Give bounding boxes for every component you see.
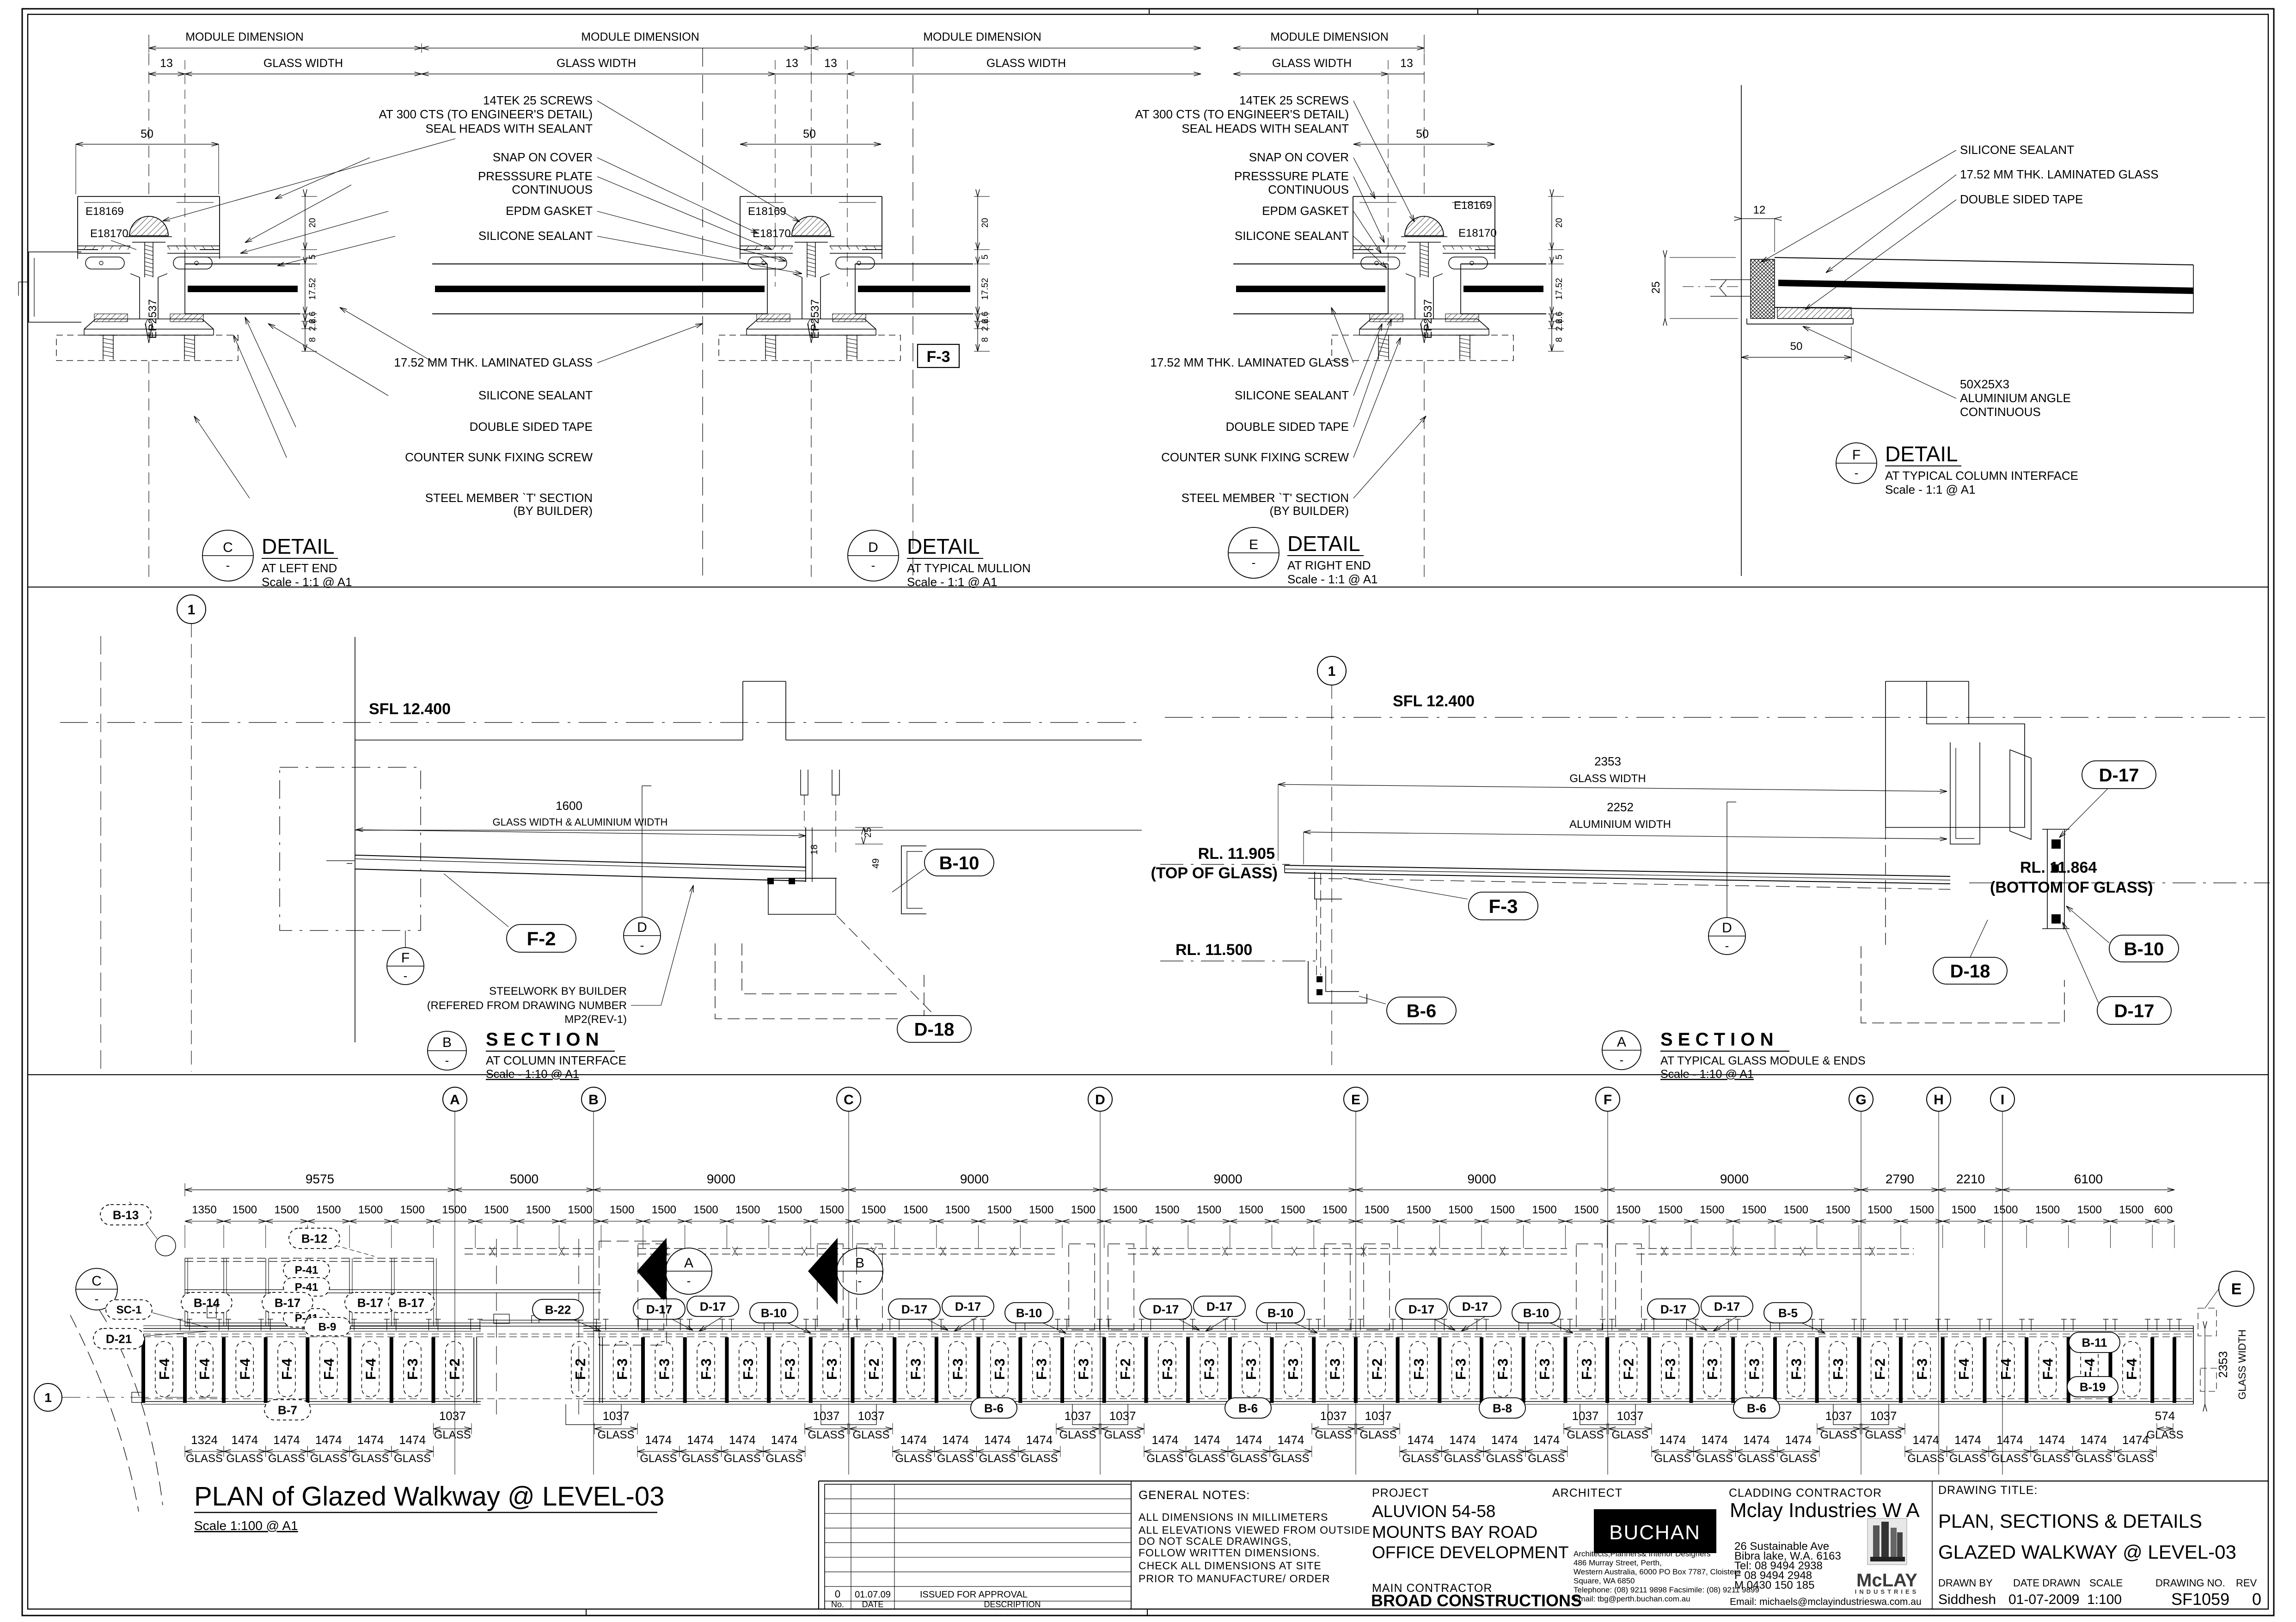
svg-text:MODULE DIMENSION: MODULE DIMENSION: [1270, 31, 1389, 43]
svg-text:50: 50: [1790, 340, 1803, 353]
svg-text:ALL ELEVATIONS VIEWED FROM: ALL ELEVATIONS VIEWED FROM OUTSIDE: [1139, 1524, 1370, 1536]
svg-text:E18170: E18170: [1458, 227, 1497, 239]
svg-text:1500: 1500: [1155, 1204, 1179, 1216]
svg-text:D-17: D-17: [1206, 1299, 1232, 1313]
svg-text:Email: tbg@perth.buchan.com.au: Email: tbg@perth.buchan.com.au: [1574, 1595, 1690, 1604]
svg-text:F: F: [1604, 1092, 1612, 1108]
svg-text:2.6: 2.6: [1555, 319, 1564, 331]
svg-text:GLASS: GLASS: [1146, 1452, 1183, 1465]
svg-text:B-17: B-17: [275, 1296, 300, 1310]
svg-text:F-3: F-3: [1537, 1359, 1553, 1380]
svg-text:8: 8: [308, 337, 318, 343]
svg-text:GLASS: GLASS: [1696, 1452, 1733, 1465]
svg-text:H: H: [1934, 1092, 1944, 1108]
svg-text:1474: 1474: [942, 1433, 969, 1447]
svg-text:8: 8: [1555, 337, 1564, 343]
svg-text:1474: 1474: [231, 1433, 258, 1447]
svg-text:Scale - 1:1 @ A1: Scale - 1:1 @ A1: [1885, 483, 1976, 496]
svg-text:GLASS: GLASS: [1402, 1452, 1439, 1465]
svg-text:GLASS: GLASS: [1611, 1429, 1648, 1441]
svg-text:AT 300 CTS (TO ENGINEER'S DETA: AT 300 CTS (TO ENGINEER'S DETAIL): [379, 107, 593, 121]
svg-text:GLASS: GLASS: [352, 1452, 389, 1465]
svg-text:600: 600: [2154, 1204, 2173, 1216]
svg-text:CONTINUOUS: CONTINUOUS: [1268, 183, 1349, 196]
svg-text:GLASS WIDTH: GLASS WIDTH: [263, 57, 343, 70]
svg-text:F-3: F-3: [1489, 895, 1518, 917]
svg-text:SFL 12.400: SFL 12.400: [369, 700, 451, 718]
svg-text:1500: 1500: [1658, 1204, 1682, 1216]
svg-text:F-3: F-3: [1285, 1359, 1301, 1380]
svg-text:1500: 1500: [1280, 1204, 1305, 1216]
svg-text:A: A: [450, 1092, 460, 1108]
svg-text:FOLLOW WRITTEN DIMENSIONS.: FOLLOW WRITTEN DIMENSIONS.: [1139, 1547, 1320, 1559]
svg-text:1500: 1500: [484, 1204, 508, 1216]
svg-text:REV: REV: [2236, 1577, 2257, 1589]
svg-text:STEEL MEMBER `T' SECTION: STEEL MEMBER `T' SECTION: [425, 491, 593, 505]
svg-text:1500: 1500: [2077, 1204, 2101, 1216]
svg-text:F: F: [401, 950, 410, 966]
svg-text:GLASS: GLASS: [1949, 1452, 1986, 1465]
svg-text:EPDM GASKET: EPDM GASKET: [506, 204, 593, 218]
svg-text:17.52 MM THK. LAMINATED GLASS: 17.52 MM THK. LAMINATED GLASS: [394, 355, 593, 369]
svg-text:1500: 1500: [610, 1204, 634, 1216]
svg-text:1474: 1474: [1026, 1433, 1053, 1447]
svg-text:1474: 1474: [1954, 1433, 1981, 1447]
svg-text:9000: 9000: [1720, 1172, 1749, 1186]
svg-text:F-3: F-3: [782, 1359, 798, 1380]
svg-text:D: D: [868, 540, 878, 555]
svg-text:Architects,Planners& Interior: Architects,Planners& Interior Designers: [1574, 1549, 1711, 1558]
svg-text:1500: 1500: [945, 1204, 970, 1216]
svg-text:SILICONE SEALANT: SILICONE SEALANT: [1235, 388, 1349, 402]
svg-text:GLASS: GLASS: [1780, 1452, 1817, 1465]
svg-text:(BY BUILDER): (BY BUILDER): [514, 504, 593, 518]
svg-text:1500: 1500: [2119, 1204, 2143, 1216]
svg-text:1500: 1500: [1825, 1204, 1850, 1216]
svg-text:-: -: [687, 1274, 691, 1288]
svg-text:B-19: B-19: [2080, 1380, 2106, 1394]
svg-text:D-17: D-17: [901, 1302, 927, 1316]
svg-text:E18169: E18169: [86, 205, 124, 218]
svg-text:G: G: [1855, 1092, 1866, 1108]
svg-text:F-4: F-4: [156, 1358, 172, 1380]
svg-text:1500: 1500: [778, 1204, 802, 1216]
svg-text:GLASS: GLASS: [765, 1452, 802, 1465]
svg-text:I: I: [2001, 1092, 2004, 1108]
svg-text:EP2537: EP2537: [147, 299, 159, 338]
svg-text:F-3: F-3: [740, 1359, 756, 1380]
svg-text:49: 49: [871, 858, 881, 869]
svg-text:D-17: D-17: [1408, 1302, 1434, 1316]
svg-text:D: D: [637, 920, 647, 935]
svg-text:14TEK 25 SCREWS: 14TEK 25 SCREWS: [483, 93, 593, 107]
svg-text:1474: 1474: [273, 1433, 300, 1447]
svg-text:Western Australia, 6000 PO Box: Western Australia, 6000 PO Box 7787, Clo…: [1574, 1567, 1741, 1576]
svg-text:F-3: F-3: [1327, 1359, 1343, 1380]
svg-text:1474: 1474: [1151, 1433, 1178, 1447]
svg-text:D-17: D-17: [955, 1299, 981, 1313]
svg-text:E: E: [1351, 1092, 1360, 1108]
svg-text:1500: 1500: [693, 1204, 718, 1216]
svg-text:CLADDING CONTRACTOR: CLADDING CONTRACTOR: [1729, 1487, 1882, 1500]
svg-text:GLASS: GLASS: [1021, 1452, 1058, 1465]
svg-text:STEELWORK BY BUILDER: STEELWORK BY BUILDER: [489, 985, 627, 998]
svg-text:F-3: F-3: [949, 1359, 966, 1380]
svg-text:1500: 1500: [233, 1204, 257, 1216]
svg-text:EPDM GASKET: EPDM GASKET: [1262, 204, 1349, 218]
svg-text:F-3: F-3: [927, 348, 950, 366]
svg-text:GLASS: GLASS: [1188, 1452, 1225, 1465]
svg-text:2790: 2790: [1886, 1172, 1914, 1186]
svg-text:1500: 1500: [442, 1204, 466, 1216]
svg-text:F-3: F-3: [1914, 1359, 1930, 1380]
svg-text:SILICONE SEALANT: SILICONE SEALANT: [1235, 229, 1349, 243]
svg-text:1474: 1474: [1659, 1433, 1686, 1447]
svg-text:GLASS: GLASS: [1567, 1429, 1604, 1441]
svg-text:1: 1: [1328, 664, 1336, 679]
svg-text:GLASS WIDTH & ALUMINIUM WI: GLASS WIDTH & ALUMINIUM WIDTH: [493, 816, 668, 828]
svg-text:B: B: [588, 1092, 599, 1108]
svg-text:1500: 1500: [1406, 1204, 1431, 1216]
svg-text:-: -: [1725, 939, 1729, 953]
svg-text:GLASS: GLASS: [682, 1452, 719, 1465]
svg-text:1474: 1474: [1194, 1433, 1220, 1447]
svg-text:GLASS WIDTH: GLASS WIDTH: [986, 57, 1066, 70]
svg-text:DRAWING NO.: DRAWING NO.: [2155, 1577, 2225, 1589]
svg-text:GENERAL NOTES:: GENERAL NOTES:: [1139, 1488, 1250, 1502]
svg-text:20: 20: [980, 218, 990, 227]
svg-text:GLASS: GLASS: [1907, 1452, 1944, 1465]
svg-text:B-6: B-6: [1407, 1001, 1436, 1021]
svg-text:F-3: F-3: [404, 1359, 421, 1380]
svg-text:2210: 2210: [1956, 1172, 1985, 1186]
svg-text:B-22: B-22: [545, 1303, 571, 1316]
svg-text:1: 1: [44, 1390, 52, 1405]
svg-text:AT RIGHT END: AT RIGHT END: [1287, 558, 1371, 572]
svg-text:DATE DRAWN: DATE DRAWN: [2013, 1577, 2080, 1589]
svg-text:1474: 1474: [2039, 1433, 2065, 1447]
svg-text:5: 5: [1555, 255, 1564, 260]
svg-text:DOUBLE SIDED TAPE: DOUBLE SIDED TAPE: [470, 420, 593, 434]
svg-text:1500: 1500: [1490, 1204, 1515, 1216]
svg-text:B-5: B-5: [1778, 1306, 1798, 1320]
svg-text:1037: 1037: [603, 1409, 630, 1423]
svg-text:DETAIL: DETAIL: [1885, 442, 1958, 466]
svg-text:GLASS: GLASS: [1272, 1452, 1309, 1465]
svg-text:F-2: F-2: [1620, 1359, 1636, 1380]
svg-text:BROAD CONSTRUCTIONS: BROAD CONSTRUCTIONS: [1371, 1591, 1582, 1610]
svg-text:13: 13: [1400, 57, 1413, 70]
svg-text:F-3: F-3: [992, 1359, 1008, 1380]
svg-text:01-07-2009: 01-07-2009: [2008, 1592, 2079, 1607]
svg-text:B-7: B-7: [278, 1403, 297, 1417]
svg-text:D-17: D-17: [646, 1302, 672, 1316]
svg-text:2252: 2252: [1607, 800, 1634, 814]
svg-text:F-4: F-4: [2124, 1358, 2140, 1380]
svg-text:9000: 9000: [960, 1172, 989, 1186]
svg-text:E18169: E18169: [1454, 199, 1492, 212]
svg-text:Scale - 1:1 @ A1: Scale - 1:1 @ A1: [262, 575, 352, 589]
svg-text:GLASS: GLASS: [2075, 1452, 2112, 1465]
svg-text:GLASS: GLASS: [1654, 1452, 1691, 1465]
svg-text:B-10: B-10: [761, 1306, 787, 1320]
svg-text:1037: 1037: [1617, 1409, 1644, 1423]
svg-text:1474: 1474: [729, 1433, 756, 1447]
svg-text:1037: 1037: [813, 1409, 840, 1423]
svg-text:F-4: F-4: [1998, 1358, 2014, 1380]
svg-text:2353: 2353: [1594, 754, 1621, 768]
svg-text:F-2: F-2: [866, 1359, 882, 1380]
svg-text:GLASS: GLASS: [2146, 1429, 2183, 1441]
svg-text:GLASS: GLASS: [597, 1429, 634, 1441]
svg-text:SF1059: SF1059: [2171, 1590, 2229, 1609]
svg-text:GLASS: GLASS: [1865, 1429, 1902, 1441]
svg-text:B-10: B-10: [1523, 1306, 1549, 1320]
svg-text:D-17: D-17: [1660, 1302, 1686, 1316]
svg-text:20: 20: [1555, 218, 1564, 227]
svg-text:E: E: [1249, 537, 1258, 552]
svg-text:S E C T I O N: S E C T I O N: [1660, 1029, 1773, 1050]
svg-text:SILICONE SEALANT: SILICONE SEALANT: [478, 229, 593, 243]
svg-text:CONTINUOUS: CONTINUOUS: [512, 183, 593, 196]
svg-text:-: -: [404, 969, 408, 983]
svg-text:F-4: F-4: [279, 1358, 295, 1380]
svg-text:P-41: P-41: [295, 1281, 318, 1294]
svg-text:9000: 9000: [1467, 1172, 1496, 1186]
svg-text:EP2537: EP2537: [809, 299, 821, 338]
svg-text:F-3: F-3: [1746, 1359, 1763, 1380]
svg-text:(BY BUILDER): (BY BUILDER): [1270, 504, 1349, 518]
svg-text:B-8: B-8: [1493, 1401, 1512, 1415]
svg-text:Email: michaels@mclayindustrie: Email: michaels@mclayindustrieswa.com.au: [1730, 1597, 1922, 1607]
svg-text:1500: 1500: [1029, 1204, 1053, 1216]
svg-text:E18170: E18170: [753, 227, 791, 240]
svg-text:D-21: D-21: [106, 1332, 132, 1346]
svg-text:ARCHITECT: ARCHITECT: [1552, 1487, 1623, 1500]
svg-text:13: 13: [824, 57, 837, 70]
svg-text:1474: 1474: [1743, 1433, 1770, 1447]
svg-text:AT COLUMN INTERFACE: AT COLUMN INTERFACE: [486, 1053, 626, 1067]
svg-text:12: 12: [1753, 204, 1766, 216]
svg-text:1500: 1500: [2035, 1204, 2060, 1216]
svg-text:B-11: B-11: [2082, 1335, 2107, 1349]
svg-text:18: 18: [809, 845, 820, 855]
svg-text:-: -: [1252, 556, 1256, 569]
svg-text:PLAN of Glazed Walkway @ LEVEL: PLAN of Glazed Walkway @ LEVEL-03: [194, 1481, 664, 1512]
svg-text:McLAY: McLAY: [1856, 1570, 1917, 1591]
svg-text:8: 8: [980, 337, 990, 343]
svg-text:DESCRIPTION: DESCRIPTION: [984, 1600, 1041, 1609]
svg-text:D: D: [1095, 1092, 1105, 1108]
svg-text:GLASS: GLASS: [394, 1452, 431, 1465]
svg-text:13: 13: [160, 57, 173, 70]
svg-text:MODULE DIMENSION: MODULE DIMENSION: [185, 31, 304, 43]
svg-text:MOUNTS BAY ROAD: MOUNTS BAY ROAD: [1372, 1523, 1537, 1542]
svg-text:1037: 1037: [1109, 1409, 1136, 1423]
svg-text:F-3: F-3: [1453, 1359, 1469, 1380]
svg-text:Square, WA 6850: Square, WA 6850: [1574, 1577, 1635, 1585]
svg-text:E18169: E18169: [748, 205, 786, 218]
svg-text:MP2(REV-1): MP2(REV-1): [564, 1013, 627, 1026]
svg-text:Siddhesh: Siddhesh: [1938, 1592, 1996, 1607]
svg-text:F-2: F-2: [447, 1359, 463, 1380]
svg-text:1474: 1474: [2122, 1433, 2149, 1447]
svg-text:F-3: F-3: [1830, 1359, 1846, 1380]
svg-text:CONTINUOUS: CONTINUOUS: [1960, 405, 2041, 419]
svg-text:S E C T I O N: S E C T I O N: [486, 1029, 599, 1050]
svg-text:GLASS WIDTH: GLASS WIDTH: [557, 57, 636, 70]
svg-text:1474: 1474: [2080, 1433, 2107, 1447]
svg-text:1037: 1037: [1065, 1409, 1091, 1423]
svg-text:0: 0: [835, 1588, 840, 1600]
svg-text:1500: 1500: [1574, 1204, 1598, 1216]
svg-text:PRESSSURE PLATE: PRESSSURE PLATE: [1234, 169, 1349, 183]
svg-text:D-17: D-17: [2114, 1001, 2155, 1021]
svg-text:F-2: F-2: [1117, 1359, 1133, 1380]
svg-text:Scale - 1:10 @ A1: Scale - 1:10 @ A1: [486, 1068, 579, 1081]
svg-text:B-14: B-14: [194, 1296, 220, 1310]
svg-text:DETAIL: DETAIL: [907, 534, 980, 558]
svg-text:1500: 1500: [526, 1204, 551, 1216]
svg-text:1500: 1500: [1951, 1204, 1976, 1216]
svg-text:GLASS: GLASS: [310, 1452, 347, 1465]
svg-text:AT TYPICAL COLUMN INTERFACE: AT TYPICAL COLUMN INTERFACE: [1885, 469, 2078, 483]
svg-text:GLASS: GLASS: [1486, 1452, 1523, 1465]
svg-text:D-17: D-17: [1462, 1299, 1488, 1313]
svg-text:1474: 1474: [315, 1433, 342, 1447]
svg-text:GLASS: GLASS: [937, 1452, 974, 1465]
svg-text:F-4: F-4: [237, 1358, 253, 1380]
svg-text:GLASS: GLASS: [226, 1452, 263, 1465]
svg-text:GLASS: GLASS: [1991, 1452, 2028, 1465]
svg-text:20: 20: [308, 218, 318, 227]
svg-text:1037: 1037: [439, 1409, 466, 1423]
svg-text:GLASS: GLASS: [1104, 1429, 1141, 1441]
svg-text:SILICONE SEALANT: SILICONE SEALANT: [478, 388, 593, 402]
svg-text:GLASS: GLASS: [2117, 1452, 2154, 1465]
svg-text:RL. 11.905: RL. 11.905: [1198, 845, 1275, 863]
svg-text:1500: 1500: [316, 1204, 341, 1216]
svg-text:B-10: B-10: [2124, 939, 2164, 959]
svg-text:PRESSSURE PLATE: PRESSSURE PLATE: [478, 169, 593, 183]
svg-text:GLASS: GLASS: [1231, 1452, 1267, 1465]
svg-text:-: -: [858, 1274, 862, 1288]
svg-text:SILICONE SEALANT: SILICONE SEALANT: [1960, 143, 2074, 157]
svg-text:1500: 1500: [1322, 1204, 1347, 1216]
svg-text:01.07.09: 01.07.09: [855, 1590, 891, 1600]
svg-text:1500: 1500: [568, 1204, 592, 1216]
svg-text:1500: 1500: [819, 1204, 844, 1216]
svg-text:1037: 1037: [1825, 1409, 1852, 1423]
svg-text:MODULE DIMENSION: MODULE DIMENSION: [923, 31, 1041, 43]
svg-text:9575: 9575: [306, 1172, 334, 1186]
svg-text:D: D: [1722, 920, 1732, 936]
svg-text:1037: 1037: [1572, 1409, 1599, 1423]
svg-text:1474: 1474: [1996, 1433, 2023, 1447]
svg-text:COUNTER SUNK FIXING SCREW: COUNTER SUNK FIXING SCREW: [405, 450, 593, 464]
svg-text:GLASS: GLASS: [268, 1452, 305, 1465]
svg-text:D-18: D-18: [914, 1019, 955, 1040]
svg-text:1474: 1474: [771, 1433, 798, 1447]
svg-text:COUNTER SUNK FIXING SCREW: COUNTER SUNK FIXING SCREW: [1161, 450, 1349, 464]
svg-text:GLAZED WALKWAY @ LEVEL-03: GLAZED WALKWAY @ LEVEL-03: [1938, 1541, 2236, 1563]
svg-text:C: C: [223, 540, 233, 555]
svg-text:F-2: F-2: [1369, 1359, 1385, 1380]
svg-text:SEAL HEADS WITH SEALANT: SEAL HEADS WITH SEALANT: [425, 122, 593, 135]
svg-text:GLASS WIDTH: GLASS WIDTH: [1569, 772, 1646, 785]
svg-text:B-12: B-12: [301, 1231, 327, 1245]
svg-text:DRAWN BY: DRAWN BY: [1938, 1577, 1993, 1589]
svg-text:(BOTTOM OF GLASS): (BOTTOM OF GLASS): [1990, 879, 2153, 896]
svg-text:DETAIL: DETAIL: [1287, 532, 1360, 556]
svg-text:GLASS: GLASS: [2033, 1452, 2070, 1465]
svg-text:F-4: F-4: [362, 1358, 379, 1380]
svg-text:GLASS: GLASS: [1738, 1452, 1775, 1465]
svg-text:F-2: F-2: [527, 928, 556, 949]
svg-text:1037: 1037: [1320, 1409, 1347, 1423]
svg-text:SEAL HEADS WITH SEALANT: SEAL HEADS WITH SEALANT: [1182, 122, 1349, 135]
svg-text:(TOP OF GLASS): (TOP OF GLASS): [1151, 864, 1278, 882]
svg-text:1500: 1500: [1616, 1204, 1641, 1216]
svg-text:Scale - 1:1 @ A1: Scale - 1:1 @ A1: [907, 575, 998, 589]
svg-text:GLASS: GLASS: [1444, 1452, 1481, 1465]
svg-text:DO NOT SCALE DRAWINGS,: DO NOT SCALE DRAWINGS,: [1139, 1535, 1292, 1547]
svg-text:5000: 5000: [510, 1172, 539, 1186]
svg-text:-: -: [445, 1053, 449, 1067]
svg-text:SCALE: SCALE: [2089, 1577, 2123, 1589]
svg-text:F-3: F-3: [1788, 1359, 1804, 1380]
svg-text:1500: 1500: [1365, 1204, 1389, 1216]
svg-text:1500: 1500: [903, 1204, 928, 1216]
svg-text:1324: 1324: [191, 1433, 218, 1447]
svg-text:B-10: B-10: [1267, 1306, 1293, 1320]
svg-text:ALUMINIUM ANGLE: ALUMINIUM ANGLE: [1960, 391, 2071, 405]
svg-text:PROJECT: PROJECT: [1372, 1487, 1429, 1500]
svg-text:B-10: B-10: [1016, 1306, 1042, 1320]
svg-text:GLASS: GLASS: [186, 1452, 223, 1465]
svg-text:6100: 6100: [2074, 1172, 2103, 1186]
svg-text:RL. 11.500: RL. 11.500: [1176, 941, 1252, 959]
svg-text:B-6: B-6: [1238, 1401, 1258, 1415]
svg-text:ALL DIMENSIONS IN MILLIMETE: ALL DIMENSIONS IN MILLIMETERS: [1139, 1511, 1328, 1523]
svg-text:B-13: B-13: [113, 1208, 139, 1222]
svg-text:1474: 1474: [900, 1433, 927, 1447]
svg-text:-: -: [871, 558, 876, 572]
svg-text:C: C: [92, 1273, 102, 1289]
svg-text:50: 50: [1416, 128, 1429, 141]
svg-text:B-10: B-10: [939, 853, 980, 873]
svg-text:-: -: [1855, 466, 1859, 480]
svg-text:2353: 2353: [2216, 1351, 2230, 1378]
svg-text:1474: 1474: [1785, 1433, 1812, 1447]
svg-text:1474: 1474: [1491, 1433, 1518, 1447]
svg-text:F-3: F-3: [1579, 1359, 1595, 1380]
svg-text:1: 1: [188, 602, 196, 618]
svg-text:1500: 1500: [652, 1204, 676, 1216]
svg-text:1474: 1474: [1278, 1433, 1304, 1447]
svg-text:2.6: 2.6: [980, 319, 990, 331]
svg-text:F-4: F-4: [2039, 1358, 2056, 1380]
svg-text:DATE: DATE: [862, 1600, 884, 1609]
svg-text:F-2: F-2: [1872, 1359, 1888, 1380]
svg-text:574: 574: [2155, 1409, 2175, 1423]
svg-text:B-17: B-17: [398, 1296, 424, 1310]
svg-text:No.: No.: [831, 1600, 844, 1609]
svg-text:DOUBLE SIDED TAPE: DOUBLE SIDED TAPE: [1226, 420, 1349, 434]
svg-text:B-6: B-6: [984, 1401, 1004, 1415]
svg-text:INDUSTRIES: INDUSTRIES: [1855, 1588, 1919, 1595]
svg-text:GLASS WIDTH: GLASS WIDTH: [1272, 57, 1352, 70]
